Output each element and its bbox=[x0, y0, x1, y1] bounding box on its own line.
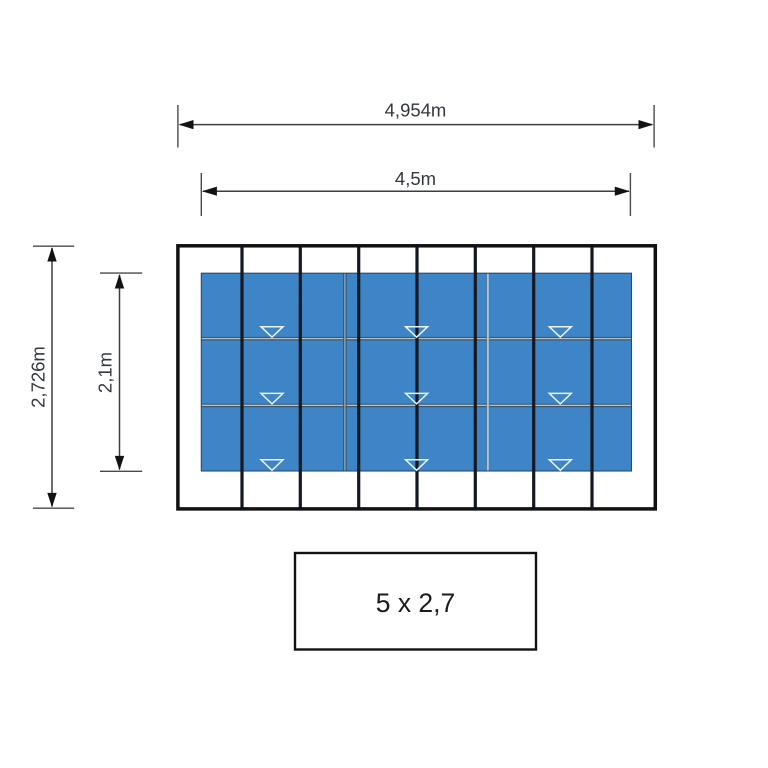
svg-text:2,726m: 2,726m bbox=[28, 346, 49, 408]
svg-text:2,1m: 2,1m bbox=[95, 352, 116, 393]
svg-text:4,5m: 4,5m bbox=[395, 168, 436, 189]
svg-text:5 x 2,7: 5 x 2,7 bbox=[376, 588, 456, 618]
svg-text:4,954m: 4,954m bbox=[385, 100, 447, 121]
